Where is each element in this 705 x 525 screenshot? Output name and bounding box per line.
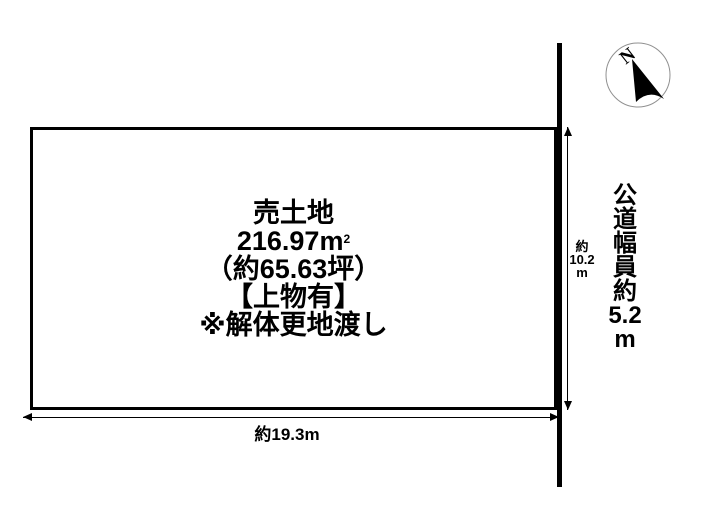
arrow-left-icon xyxy=(23,413,32,421)
area-superscript: 2 xyxy=(343,232,350,246)
parcel-note-delivery: ※解体更地渡し xyxy=(199,311,387,339)
width-dimension-label: 約19.3m xyxy=(217,420,357,445)
parcel-title: 売土地 xyxy=(199,199,387,227)
road-width-caption: 公 道 幅 員 約 5.2 m xyxy=(603,184,647,352)
land-plot-diagram: 売土地 216.97m2 （約65.63坪） 【上物有】 ※解体更地渡し 約 1… xyxy=(0,0,705,525)
parcel-note-building: 【上物有】 xyxy=(199,283,387,311)
parcel-outline: 売土地 216.97m2 （約65.63坪） 【上物有】 ※解体更地渡し xyxy=(30,127,557,410)
parcel-area: 216.97m2 xyxy=(199,227,387,255)
depth-dimension-label: 約 10.2 m xyxy=(562,240,602,279)
arrow-right-icon xyxy=(550,413,559,421)
compass-needle-icon xyxy=(632,59,664,102)
arrow-down-icon xyxy=(564,401,572,410)
parcel-area-tsubo: （約65.63坪） xyxy=(199,255,387,283)
compass-icon: N xyxy=(602,40,674,112)
width-dimension-arrow xyxy=(23,417,559,418)
parcel-label: 売土地 216.97m2 （約65.63坪） 【上物有】 ※解体更地渡し xyxy=(199,199,387,339)
arrow-up-icon xyxy=(564,127,572,136)
